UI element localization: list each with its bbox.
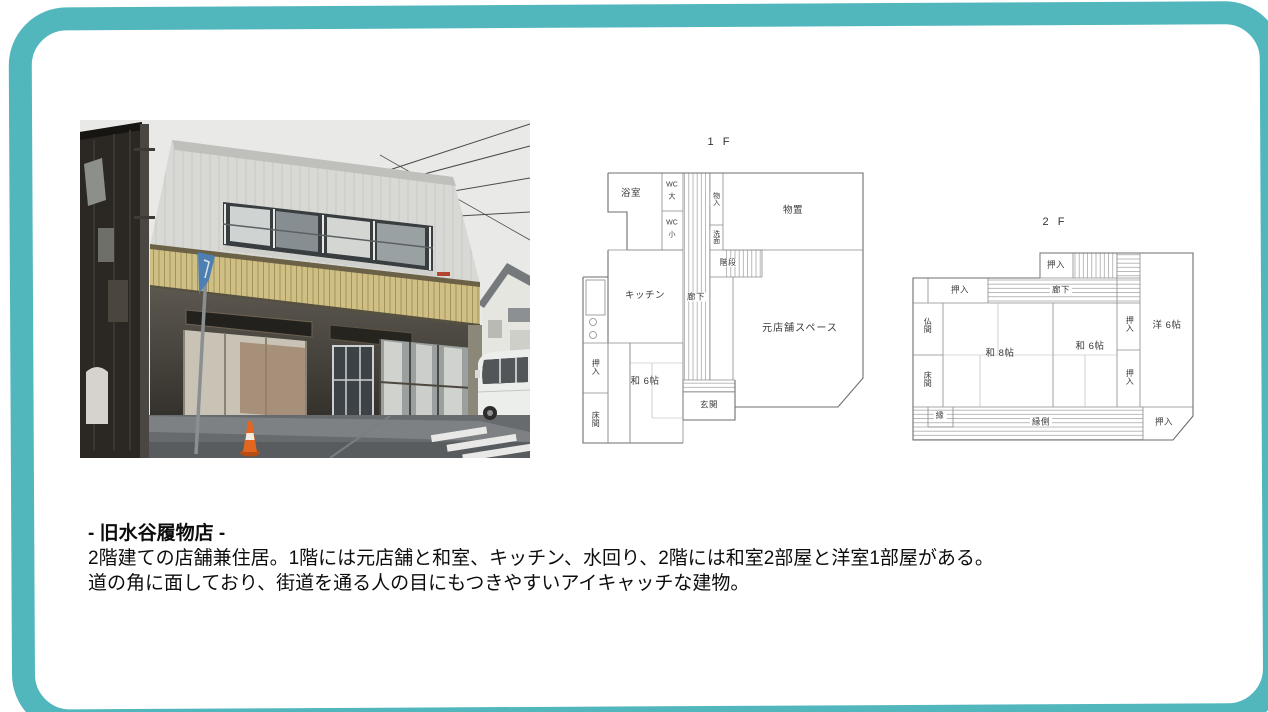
gas-cylinder — [86, 367, 108, 424]
room-label-closet-1f: 押入 — [591, 359, 599, 375]
caption-line-1: 2階建ての店舗兼住居。1階には元店舗と和室、キッチン、水回り、2階には和室2部屋… — [88, 546, 1198, 571]
van — [475, 349, 530, 420]
room-label-former-shop: 元店舗スペース — [762, 324, 838, 335]
room-label-wc-large-1: WC — [666, 181, 678, 188]
caption-line-2: 道の角に面しており、街道を通る人の目にもつきやすいアイキャッチな建物。 — [88, 571, 1198, 596]
room-label-bath: 浴室 — [621, 189, 641, 199]
room-label-closet-bottom: 押入 — [1155, 418, 1173, 427]
room-label-closet-right-lower: 押入 — [1123, 369, 1135, 385]
floorplan-1f: 1 F 浴室 WC 大 WC 小 物入 洗面 階段 物置 キッチン 廊下 押入 … — [565, 125, 880, 465]
room-label-closet-right-upper: 押入 — [1123, 316, 1135, 332]
slide-page: 1 F 浴室 WC 大 WC 小 物入 洗面 階段 物置 キッチン 廊下 押入 … — [0, 0, 1268, 712]
room-label-wc-large-2: 大 — [669, 193, 676, 200]
room-label-entrance: 玄関 — [698, 401, 720, 410]
room-label-storage: 物入 — [710, 192, 721, 206]
entrance-door — [333, 346, 373, 418]
room-label-corridor-1f: 廊下 — [685, 293, 707, 302]
room-label-closet-left: 押入 — [951, 286, 969, 295]
floorplan-1f-title: 1 F — [708, 137, 733, 149]
neighbor-building-left — [80, 122, 155, 458]
room-label-tatami6-1f: 和 6帖 — [631, 377, 660, 387]
room-label-western6: 洋 6帖 — [1153, 321, 1182, 331]
floorplan-2f-title: 2 F — [1043, 217, 1068, 229]
room-label-alcove-1f: 床間 — [591, 411, 599, 427]
building-photo — [80, 120, 530, 458]
room-label-alcove-2f: 床間 — [923, 371, 931, 387]
room-label-engawa: 縁側 — [1030, 418, 1052, 427]
room-label-washstand: 洗面 — [710, 230, 721, 244]
room-label-stairs: 階段 — [718, 259, 739, 267]
room-label-butsuma: 仏間 — [923, 317, 931, 333]
floorplan-2f: 2 F 押入 押入 廊下 仏間 床間 和 8帖 和 6帖 押入 押入 洋 6帖 … — [905, 215, 1197, 445]
caption-title: - 旧水谷履物店 - — [88, 521, 1198, 546]
caption-block: - 旧水谷履物店 - 2階建ての店舗兼住居。1階には元店舗と和室、キッチン、水回… — [88, 521, 1198, 596]
room-label-tatami6-2f: 和 6帖 — [1076, 342, 1105, 352]
room-label-closet-top: 押入 — [1045, 261, 1067, 270]
room-label-corridor-2f: 廊下 — [1050, 286, 1072, 295]
room-label-kitchen: キッチン — [625, 291, 665, 301]
room-label-tatami8: 和 8帖 — [986, 349, 1015, 359]
room-label-storeroom: 物置 — [783, 206, 803, 216]
room-label-en: 縁 — [934, 412, 947, 420]
room-label-wc-small-1: WC — [666, 219, 678, 226]
utility-pole — [140, 124, 149, 458]
building-photo-illustration — [80, 120, 530, 458]
room-label-wc-small-2: 小 — [669, 231, 676, 238]
